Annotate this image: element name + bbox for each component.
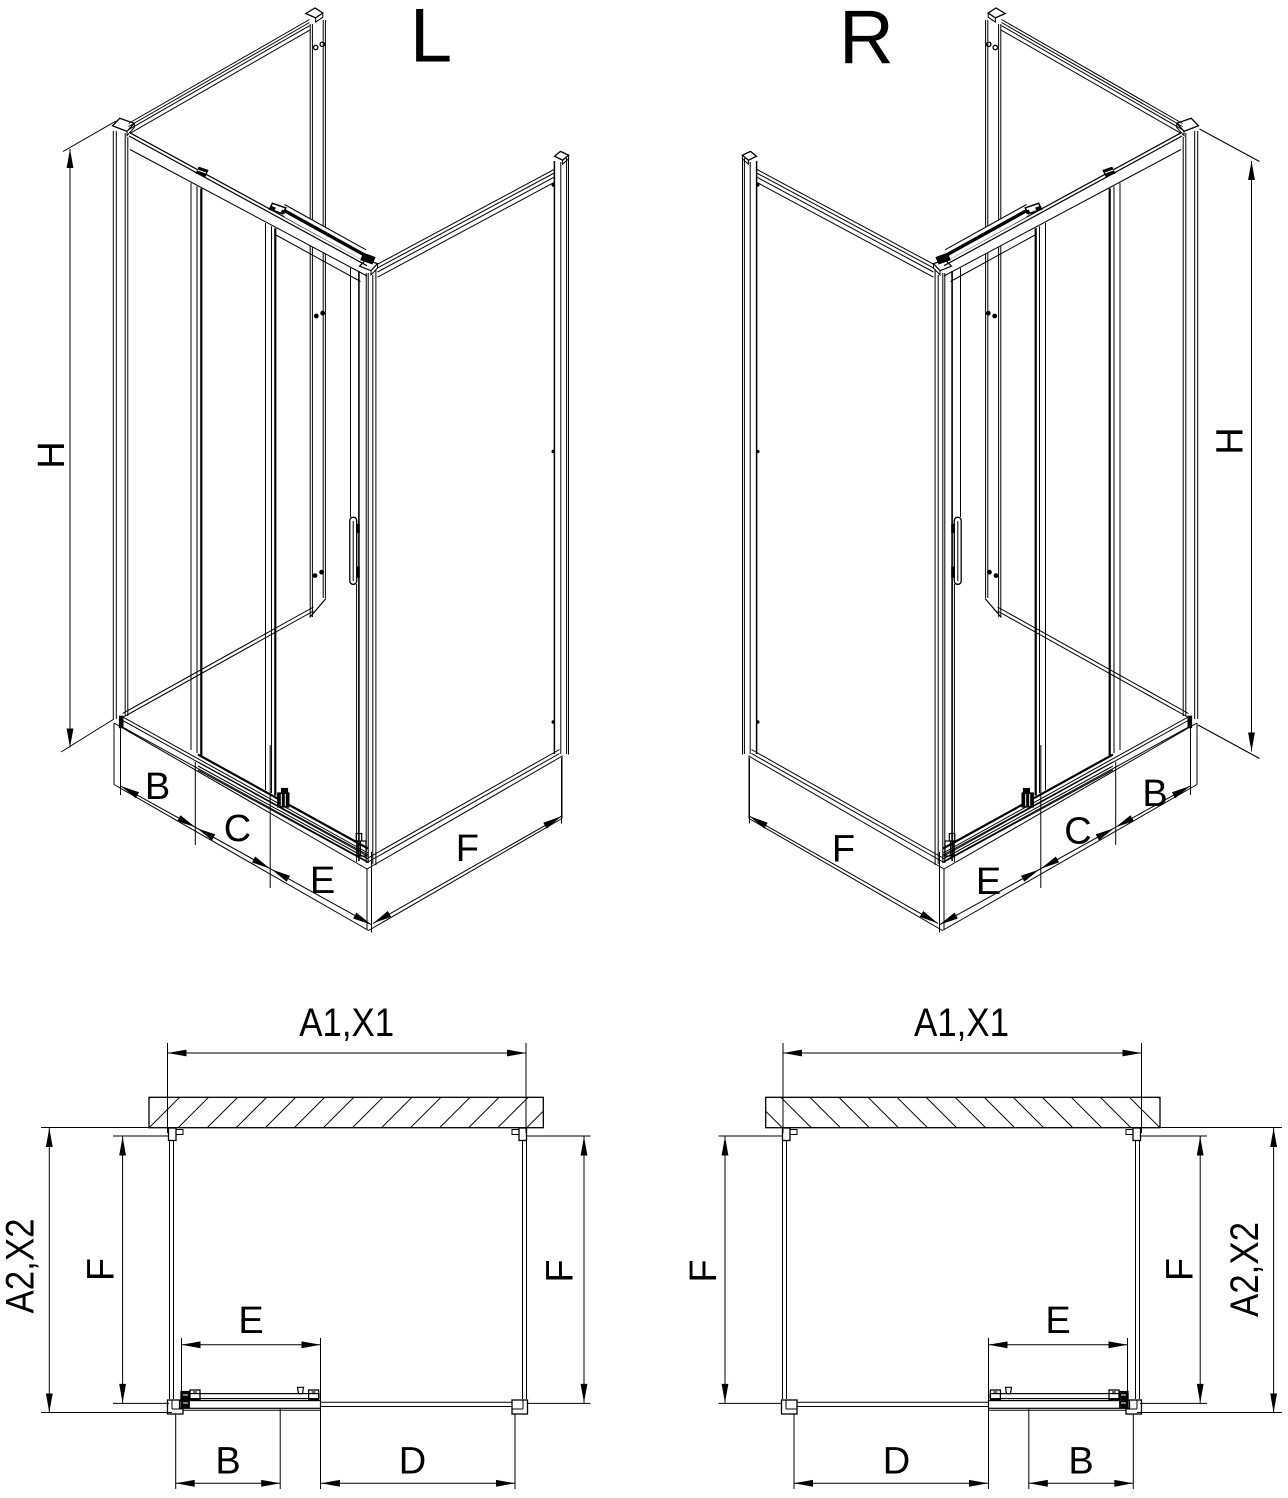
svg-text:E: E <box>238 1300 263 1342</box>
svg-text:C: C <box>1064 811 1091 853</box>
svg-text:B: B <box>145 766 170 808</box>
svg-text:E: E <box>1045 1300 1070 1342</box>
svg-text:C: C <box>224 808 251 850</box>
svg-text:F: F <box>683 1259 725 1282</box>
svg-text:F: F <box>832 829 855 871</box>
svg-text:A2,X2: A2,X2 <box>1223 1222 1267 1317</box>
svg-text:F: F <box>80 1258 122 1281</box>
svg-text:E: E <box>310 860 335 902</box>
svg-text:A1,X1: A1,X1 <box>914 1001 1009 1045</box>
svg-text:B: B <box>1142 773 1167 815</box>
svg-text:A2,X2: A2,X2 <box>0 1219 43 1314</box>
svg-text:D: D <box>883 1441 910 1483</box>
svg-text:D: D <box>399 1441 426 1483</box>
svg-text:A1,X1: A1,X1 <box>299 1001 394 1045</box>
svg-text:R: R <box>839 0 894 81</box>
svg-text:F: F <box>540 1259 582 1282</box>
svg-text:B: B <box>1068 1441 1093 1483</box>
svg-text:B: B <box>215 1441 240 1483</box>
svg-text:H: H <box>31 441 73 468</box>
svg-text:E: E <box>976 861 1001 903</box>
svg-text:F: F <box>456 828 479 870</box>
svg-text:L: L <box>410 0 452 79</box>
svg-text:F: F <box>1160 1258 1202 1281</box>
svg-text:H: H <box>1210 427 1252 454</box>
